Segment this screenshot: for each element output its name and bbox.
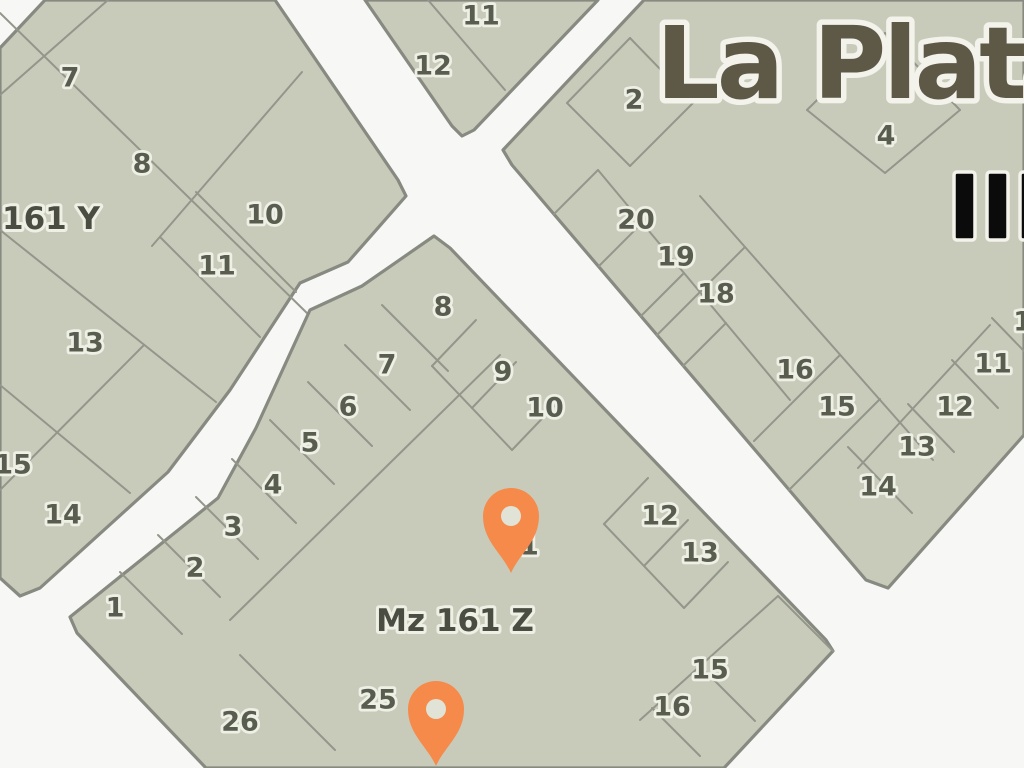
lot-number: 11 [974,349,1012,380]
lot-number: 15 [818,392,856,423]
lot-number: 12 [936,392,974,423]
lot-number: 5 [301,428,320,459]
lot-number: 20 [617,205,655,236]
lot-number: 1 [106,593,125,624]
lot-number: 10 [246,200,284,231]
lot-number: 16 [653,692,691,723]
lot-number: 7 [378,350,397,381]
block-label: Mz 161 Z [376,603,534,639]
logo-bar [954,172,975,240]
lot-number: 6 [339,392,358,423]
lot-number: 8 [133,149,152,180]
lot-number: 12 [414,51,452,82]
lot-number: 16 [776,355,814,386]
lot-number: 25 [359,685,397,716]
lot-number: 8 [434,292,453,323]
lot-number: 14 [44,500,82,531]
pin-hole [426,699,446,719]
lot-number: 11 [198,251,236,282]
lot-number: 18 [697,279,735,310]
lot-number: 4 [877,121,896,152]
watermark-logo-text: La Plata [656,5,1024,122]
logo-bar [1020,172,1024,240]
block-label: 161 Y [2,201,101,237]
lot-number: 13 [898,432,936,463]
lot-number: 2 [625,85,644,116]
lot-number: 13 [681,538,719,569]
lot-number: 9 [494,357,513,388]
lot-number: 13 [66,328,104,359]
map-viewport: 781011131514161 Y11128765432191012131516… [0,0,1024,768]
lot-number: 7 [61,63,80,94]
logo-bar [987,172,1008,240]
lot-number: 10 [526,393,564,424]
cadastral-map[interactable]: 781011131514161 Y11128765432191012131516… [0,0,1024,768]
lot-number: 26 [221,707,259,738]
lot-number: 3 [224,512,243,543]
lot-number: 14 [859,472,897,503]
lot-number: 12 [641,501,679,532]
lot-number: 15 [691,655,729,686]
lot-number: 11 [462,1,500,32]
lot-number: 19 [657,242,695,273]
lot-number: 2 [186,553,205,584]
lot-number: 10 [1013,307,1024,338]
pin-hole [501,506,521,526]
lot-number: 4 [264,470,283,501]
lot-number: 15 [0,450,32,481]
